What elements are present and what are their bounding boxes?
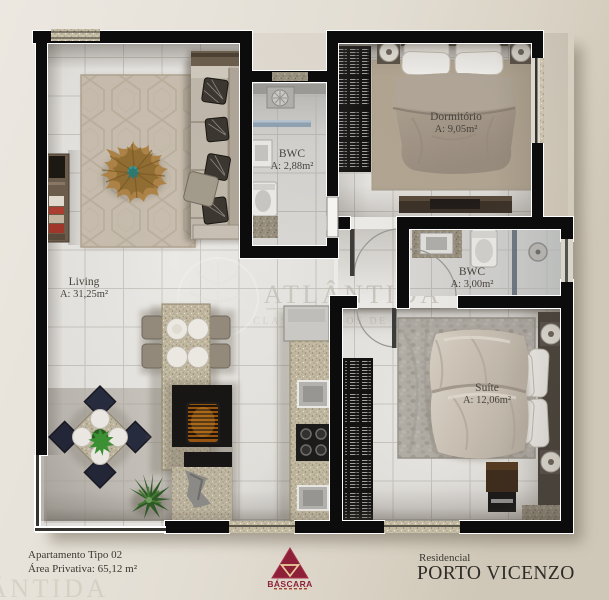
svg-text:PORTO VICENZO: PORTO VICENZO — [417, 563, 575, 584]
svg-text:ÂNTIDA: ÂNTIDA — [0, 574, 109, 600]
svg-text:BÁSCARA: BÁSCARA — [267, 579, 312, 589]
svg-text:Apartamento Tipo 02: Apartamento Tipo 02 — [28, 549, 122, 561]
